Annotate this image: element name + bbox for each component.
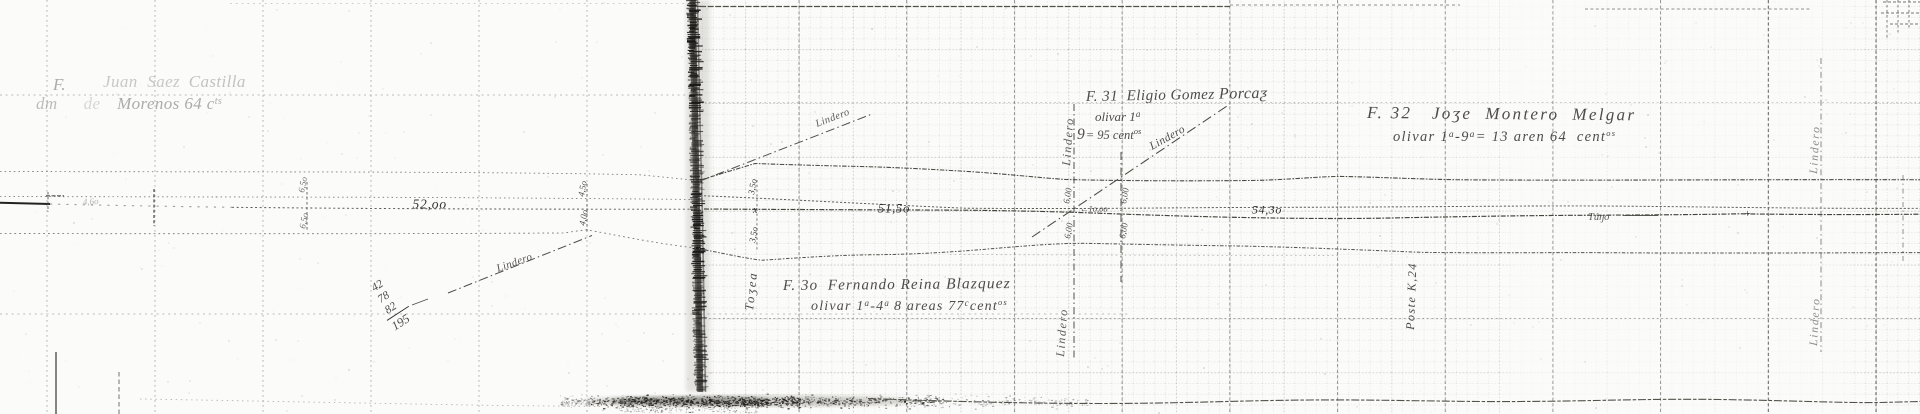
svg-text:+: + [1744, 209, 1751, 220]
svg-text:olivar 1a: olivar 1a [1095, 109, 1141, 124]
svg-text:F. 3o Fernando Reina Blazquez: F. 3o Fernando Reina Blazquez [782, 275, 1011, 294]
svg-text:←1o,oo: ←1o,oo [1080, 204, 1108, 214]
svg-text:F.: F. [52, 75, 65, 94]
svg-text:Poste K,24: Poste K,24 [1403, 262, 1419, 331]
svg-text:54,3o: 54,3o [1252, 203, 1282, 217]
svg-text:olivar 1a-4a8 areas 77ccentos: olivar 1a-4a8 areas 77ccentos [811, 297, 1008, 314]
svg-text:4,6o: 4,6o [82, 196, 99, 207]
svg-text:olivar 1a-9a= 13 aren 64 cent: olivar 1a-9a= 13 aren 64 centos [1393, 128, 1616, 145]
svg-text:F. 31 Eligio Gomez Porcaƺ: F. 31 Eligio Gomez Porcaƺ [1085, 85, 1268, 105]
svg-text:52,oo: 52,oo [413, 197, 447, 212]
svg-text:F. 32 Joʒe Montero Melgar: F. 32 Joʒe Montero Melgar [1366, 103, 1636, 124]
svg-text:x: x [752, 205, 758, 216]
svg-text:Juan Saez Castilla: Juan Saez Castilla [103, 72, 246, 91]
svg-text:51,5o: 51,5o [878, 202, 910, 216]
svg-text:Túŋo: Túŋo [1588, 212, 1609, 223]
svg-text:9= 95 centos: 9= 95 centos [1077, 126, 1142, 143]
